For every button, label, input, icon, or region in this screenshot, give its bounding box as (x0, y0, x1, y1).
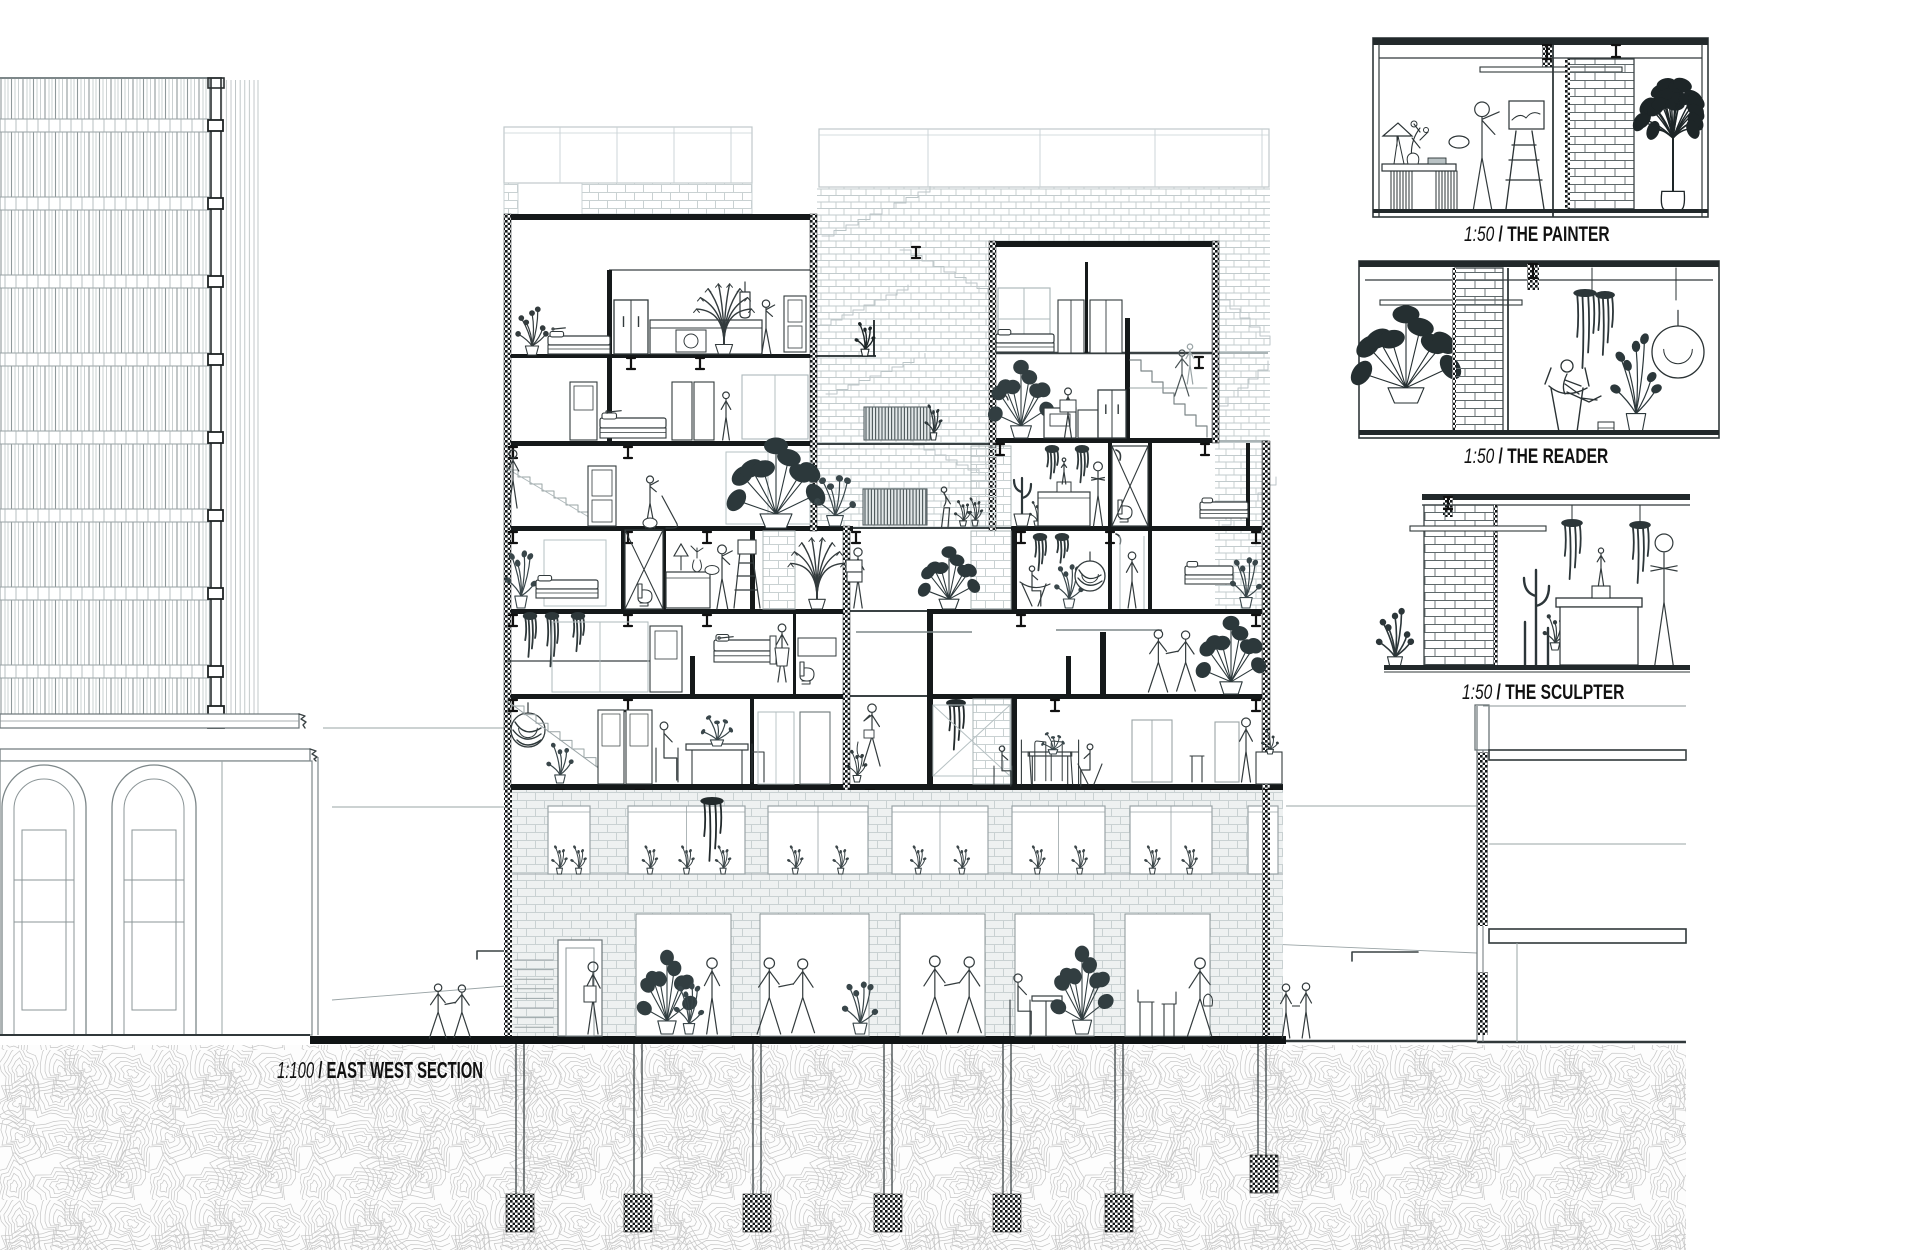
svg-text:1:100 / EAST WEST SECTION: 1:100 / EAST WEST SECTION (277, 1058, 483, 1084)
svg-text:1:50 / THE PAINTER: 1:50 / THE PAINTER (1464, 222, 1610, 246)
svg-text:1:50 / THE READER: 1:50 / THE READER (1464, 444, 1608, 468)
svg-text:1:50 / THE SCULPTER: 1:50 / THE SCULPTER (1462, 680, 1624, 704)
